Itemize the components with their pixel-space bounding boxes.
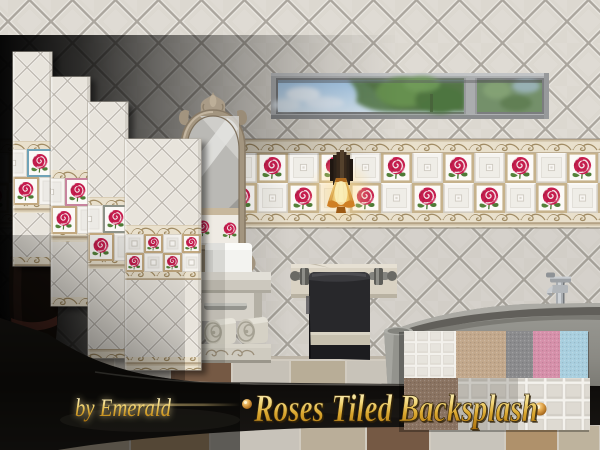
- svg-text:Roses Tiled Backsplash: Roses Tiled Backsplash: [253, 387, 538, 430]
- svg-text:by Emerald: by Emerald: [75, 395, 171, 422]
